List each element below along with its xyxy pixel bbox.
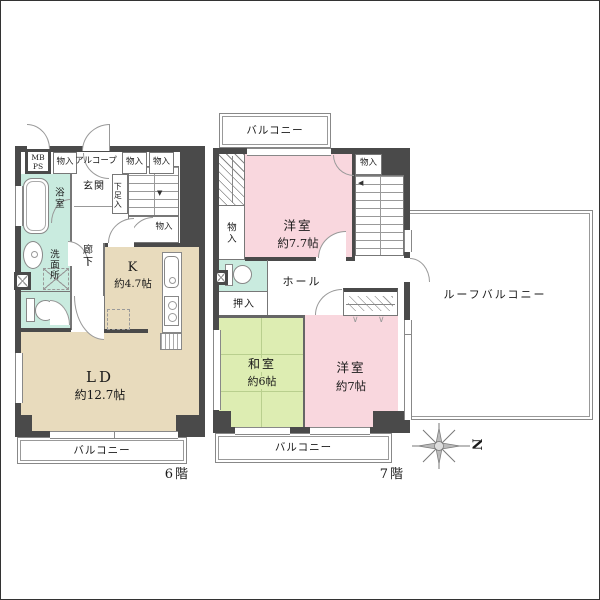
balcony-7f-bottom-label: バルコニー bbox=[216, 441, 391, 453]
tatami-line-v bbox=[261, 318, 262, 427]
compass: N bbox=[408, 420, 498, 474]
alcove-label: アルコープ bbox=[74, 157, 118, 167]
kitchen-sink bbox=[164, 256, 179, 288]
western2-balcony-window bbox=[310, 427, 370, 435]
floor-7f-label: 7階 bbox=[350, 468, 405, 483]
kitchen-hatch-cabinet bbox=[160, 333, 182, 350]
washroom-label: 洗面所 bbox=[47, 239, 58, 291]
hall-label: ホール bbox=[272, 276, 332, 289]
japanese-room-size-label: 約6帖 bbox=[232, 376, 292, 389]
meter-box-pipe-space: MB PS bbox=[25, 149, 51, 174]
stairs-window bbox=[404, 230, 412, 252]
toilet-tank-6f bbox=[26, 298, 35, 322]
oshiire-label: 押入 bbox=[221, 299, 267, 311]
mb-label: MB bbox=[28, 153, 48, 162]
alcove-door-arc bbox=[82, 124, 110, 151]
japanese-room-name-label: 和室 bbox=[232, 358, 292, 372]
pipe-space-box-7f bbox=[214, 270, 228, 285]
entrance-step-line bbox=[74, 206, 112, 207]
western1-balcony-window bbox=[247, 148, 331, 156]
western2-roof-window bbox=[404, 320, 412, 420]
storage-6f-under-stairs-label: 物入 bbox=[150, 223, 178, 233]
toilet7-right-wall bbox=[267, 260, 268, 318]
toilet7-bottom-wall bbox=[219, 291, 268, 292]
washroom-toilet-wall bbox=[21, 291, 71, 292]
refrigerator-space bbox=[107, 309, 130, 330]
toilet-bowl-7f bbox=[233, 265, 252, 284]
storage-6f-top-mid-label: 物入 bbox=[122, 158, 147, 168]
entrance-label: 玄関 bbox=[76, 181, 112, 193]
ld-balcony-window bbox=[50, 431, 178, 439]
storage-7f-top-label: 物入 bbox=[355, 159, 382, 169]
floor-6f-label: 6階 bbox=[130, 468, 190, 483]
mbps-door-arc bbox=[27, 124, 50, 149]
washitsu-balcony-window bbox=[235, 427, 290, 435]
folding-door-mark-2: ∨ bbox=[378, 316, 385, 325]
compass-north-label: N bbox=[468, 439, 483, 451]
western1-size-label: 約7.7帖 bbox=[262, 237, 334, 250]
bathtub bbox=[23, 178, 49, 234]
tatami-line-h2 bbox=[219, 391, 303, 392]
ps-label: PS bbox=[28, 162, 48, 171]
pipe-space-box bbox=[14, 272, 31, 290]
roof-balcony-inner-line bbox=[407, 213, 590, 417]
washitsu-left-window bbox=[213, 330, 221, 410]
toilet-ld-wall bbox=[15, 328, 71, 332]
western2-size-label: 約7帖 bbox=[320, 380, 382, 393]
kitchen-door-opening bbox=[108, 243, 134, 247]
balcony-7f-bottom: バルコニー bbox=[215, 433, 392, 463]
western1-name-label: 洋室 bbox=[267, 219, 329, 233]
corridor-label: 廊下 bbox=[80, 233, 92, 279]
balcony-7f-top-label: バルコニー bbox=[220, 124, 330, 136]
ld-left-window bbox=[15, 353, 23, 403]
floor-plan: ルーフバルコニー バルコニー バルコニー バルコニー MB PS 物入 アルコー… bbox=[0, 0, 600, 600]
ld-name-label: LD bbox=[60, 369, 140, 386]
ld-size-label: 約12.7帖 bbox=[55, 389, 145, 403]
balcony-6f: バルコニー bbox=[17, 437, 187, 464]
balcony-6f-label: バルコニー bbox=[18, 444, 186, 456]
storage-6f-top-right-label: 物入 bbox=[149, 158, 174, 168]
western2-name-label: 洋室 bbox=[320, 361, 382, 375]
kitchen-size-label: 約4.7帖 bbox=[103, 278, 163, 290]
bath-label: 浴室 bbox=[52, 177, 63, 219]
shoe-cabinet-label: 下足入 bbox=[113, 177, 122, 213]
hanger-closet-7f bbox=[219, 154, 245, 206]
compass-star bbox=[408, 420, 498, 474]
stairs-7f: ◀ bbox=[355, 175, 404, 256]
wall-right-of-stairs bbox=[180, 152, 199, 243]
roof-balcony bbox=[404, 210, 593, 420]
storage-7f-left-label: 物入 bbox=[224, 213, 235, 253]
balcony-7f-top: バルコニー bbox=[219, 113, 331, 148]
wall-7f-top-right bbox=[382, 154, 404, 175]
roof-balcony-label: ルーフバルコニー bbox=[425, 289, 565, 302]
pillar-6f-left bbox=[15, 415, 32, 437]
rod-closet-7f bbox=[343, 288, 398, 316]
washitsu-western2-wall bbox=[303, 315, 305, 427]
washbasin bbox=[23, 241, 43, 269]
bath-window bbox=[15, 186, 23, 226]
pillar-6f-right bbox=[176, 415, 205, 437]
kitchen-stove bbox=[164, 296, 179, 326]
tatami-line-h1 bbox=[219, 354, 303, 355]
folding-door-mark-1: ∨ bbox=[352, 316, 359, 325]
pillar-7f-left bbox=[213, 411, 231, 433]
kitchen-name-label: K bbox=[113, 261, 153, 276]
